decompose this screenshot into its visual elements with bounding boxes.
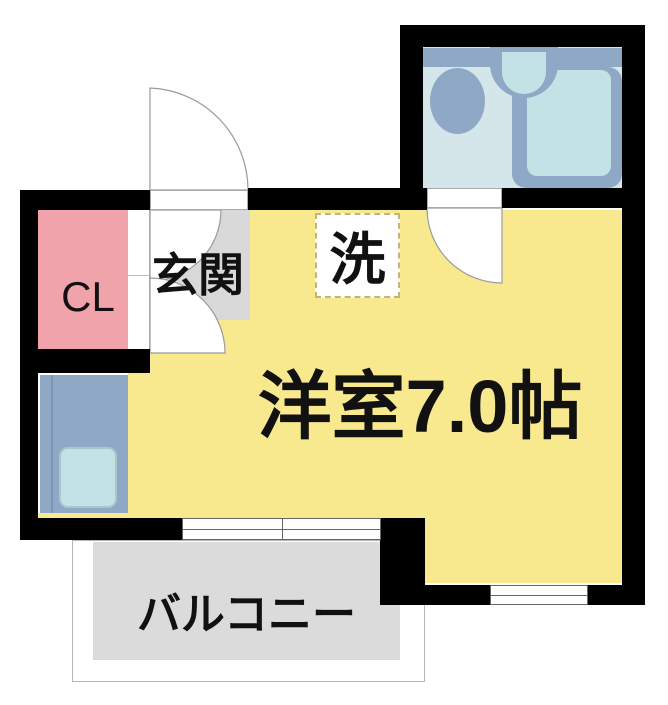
toilet-icon (430, 68, 485, 134)
entrance-door-swing-icon (150, 88, 248, 190)
balcony-label: バルコニー (93, 588, 400, 632)
washbasin-bowl (502, 52, 546, 94)
laundry-label: 洗 (330, 215, 386, 296)
wall-closet-bottom (32, 349, 150, 373)
wall-top-left (20, 190, 150, 210)
side-window-sash-line (491, 595, 587, 596)
wall-bathroom-left (400, 25, 423, 210)
balcony-window (182, 518, 381, 540)
entrance-door-opening (150, 190, 248, 210)
wall-bathroom-bottom (502, 188, 622, 208)
kitchen-sink-icon (59, 447, 117, 508)
main-room-label: 洋室7.0帖 (230, 356, 610, 444)
balcony-window-mullion (282, 519, 283, 539)
entrance-label: 玄関 (148, 244, 248, 299)
laundry-box: 洗 (315, 213, 400, 298)
closet-label: CL (38, 272, 138, 322)
wall-bottom-left (20, 518, 182, 540)
bathroom-door-swing-icon (427, 208, 502, 283)
wall-step-horizontal (425, 585, 490, 605)
wall-bottom-right (588, 585, 645, 605)
wall-bathroom-top (400, 25, 645, 47)
bathroom-door-opening (427, 188, 502, 208)
kitchen-counter-edge-line (51, 375, 53, 513)
floorplan: 洗 CL 玄関 洋室7.0帖 バルコニー (0, 0, 668, 705)
wall-right (622, 25, 645, 605)
side-window (490, 585, 588, 605)
